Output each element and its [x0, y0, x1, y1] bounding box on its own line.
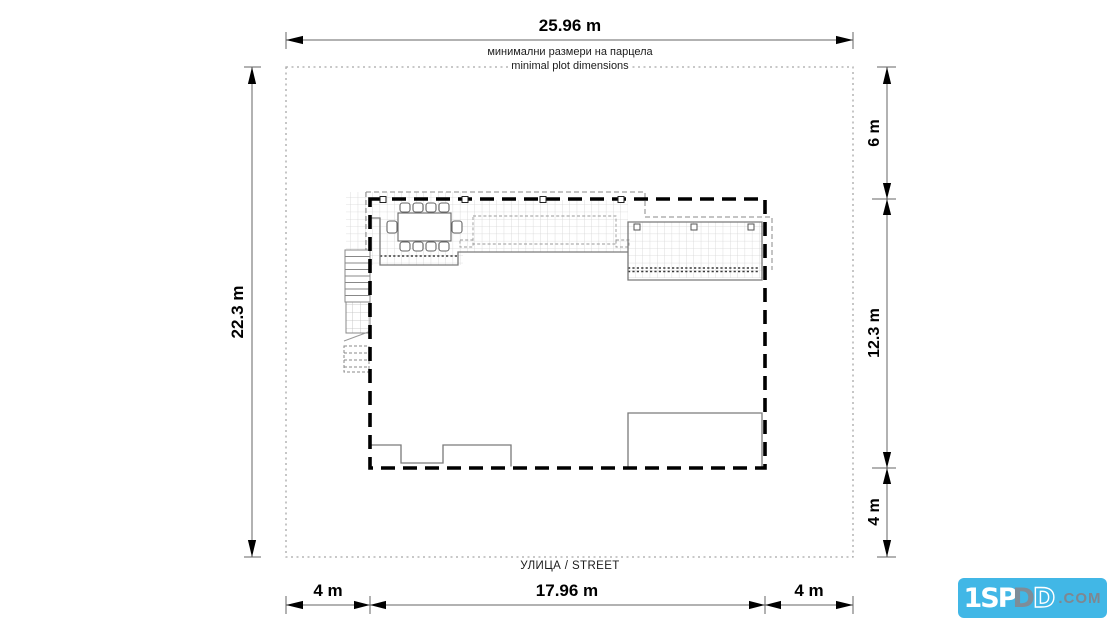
- chair: [400, 242, 410, 251]
- watermark-domain-suffix: .COM: [1058, 590, 1101, 607]
- arrow-right-icon: [836, 601, 853, 609]
- arrow-down-icon: [883, 199, 891, 215]
- chair: [452, 221, 462, 233]
- chair: [413, 242, 423, 251]
- arrow-up-icon: [248, 67, 256, 84]
- wall-bottom-porch-outline: [370, 445, 511, 467]
- site-plan-drawing: 25.96 m 22.3 m 6 m 12.3 m 4 m: [0, 0, 1120, 632]
- plot-note-line-bg: минимални размери на парцела: [484, 46, 655, 60]
- dim-bottom-center-label: 17.96 m: [536, 581, 598, 600]
- dim-right-top-label: 6 m: [866, 119, 883, 147]
- plot-note-line-en: minimal plot dimensions: [508, 60, 631, 74]
- dim-bottom-right-label: 4 m: [794, 581, 823, 600]
- arrow-up-icon: [883, 452, 891, 468]
- arrow-left-icon: [765, 601, 781, 609]
- chair: [439, 242, 449, 251]
- arrow-right-icon: [749, 601, 765, 609]
- dim-top-label: 25.96 m: [539, 16, 601, 35]
- chair: [426, 242, 436, 251]
- stairs-hidden-below: [344, 346, 369, 372]
- plot-note: минимални размери на парцела minimal plo…: [395, 46, 745, 73]
- watermark-logo: 1SP D D .COM: [958, 578, 1107, 618]
- dim-right-middle-label: 12.3 m: [866, 308, 883, 358]
- arrow-left-icon: [286, 601, 303, 609]
- chair: [439, 203, 449, 212]
- chair: [400, 203, 410, 212]
- dim-right-bottom-label: 4 m: [866, 498, 883, 526]
- arrow-up-icon: [883, 183, 891, 199]
- dim-left-label: 22.3 m: [228, 286, 247, 339]
- chair: [413, 203, 423, 212]
- chair: [387, 221, 397, 233]
- watermark-letter-d-shadow: D: [1013, 583, 1035, 614]
- site-plan-page: 25.96 m 22.3 m 6 m 12.3 m 4 m: [0, 0, 1120, 632]
- dim-bottom-left-label: 4 m: [313, 581, 342, 600]
- arrow-down-icon: [248, 540, 256, 557]
- arrow-left-icon: [370, 601, 386, 609]
- arrow-right-icon: [836, 36, 853, 44]
- chair: [426, 203, 436, 212]
- watermark-brand-text: 1SP: [963, 583, 1015, 614]
- wall-bottom-right-room-outline: [628, 413, 762, 467]
- street-label: УЛИЦА / STREET: [395, 560, 745, 572]
- watermark-letter-d-outline: D: [1033, 583, 1055, 614]
- arrow-right-icon: [354, 601, 370, 609]
- exterior-stairs: [344, 250, 371, 372]
- arrow-left-icon: [286, 36, 303, 44]
- table: [398, 213, 451, 241]
- arrow-down-icon: [883, 468, 891, 484]
- building-plan: [344, 192, 772, 468]
- stair-landing-grid: [346, 302, 370, 333]
- arrow-down-icon: [883, 540, 891, 557]
- arrow-up-icon: [883, 67, 891, 84]
